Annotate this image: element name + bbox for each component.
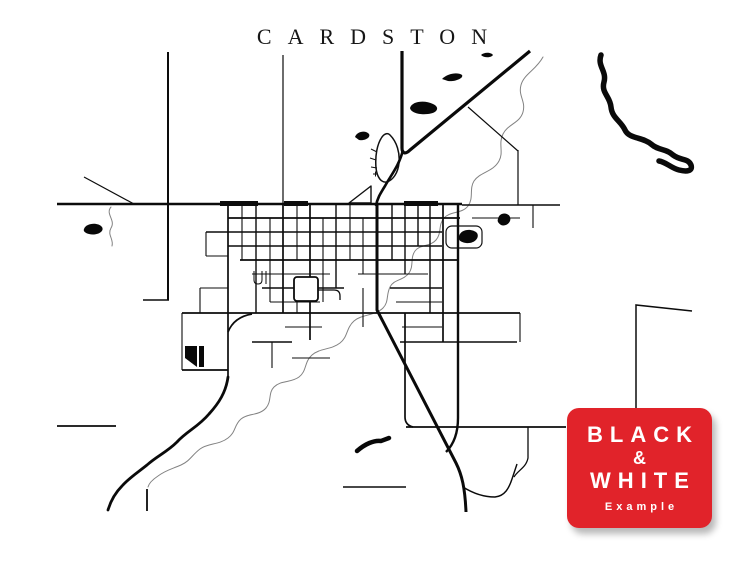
map-title: CARDSTON [0, 24, 750, 50]
color-example-badge: BLACK & WHITE Example [567, 408, 712, 528]
boundary-road [108, 377, 228, 510]
creek-lines [109, 57, 543, 487]
street-grid [182, 205, 566, 487]
map-print: CARDSTON BLACK & WHITE Example [0, 0, 750, 563]
badge-line-white: WHITE [583, 469, 696, 494]
landmark-outlines [349, 134, 482, 248]
river [600, 55, 691, 171]
badge-line-black: BLACK [580, 423, 699, 448]
badge-ampersand: & [633, 449, 646, 469]
badge-caption: Example [601, 501, 678, 513]
